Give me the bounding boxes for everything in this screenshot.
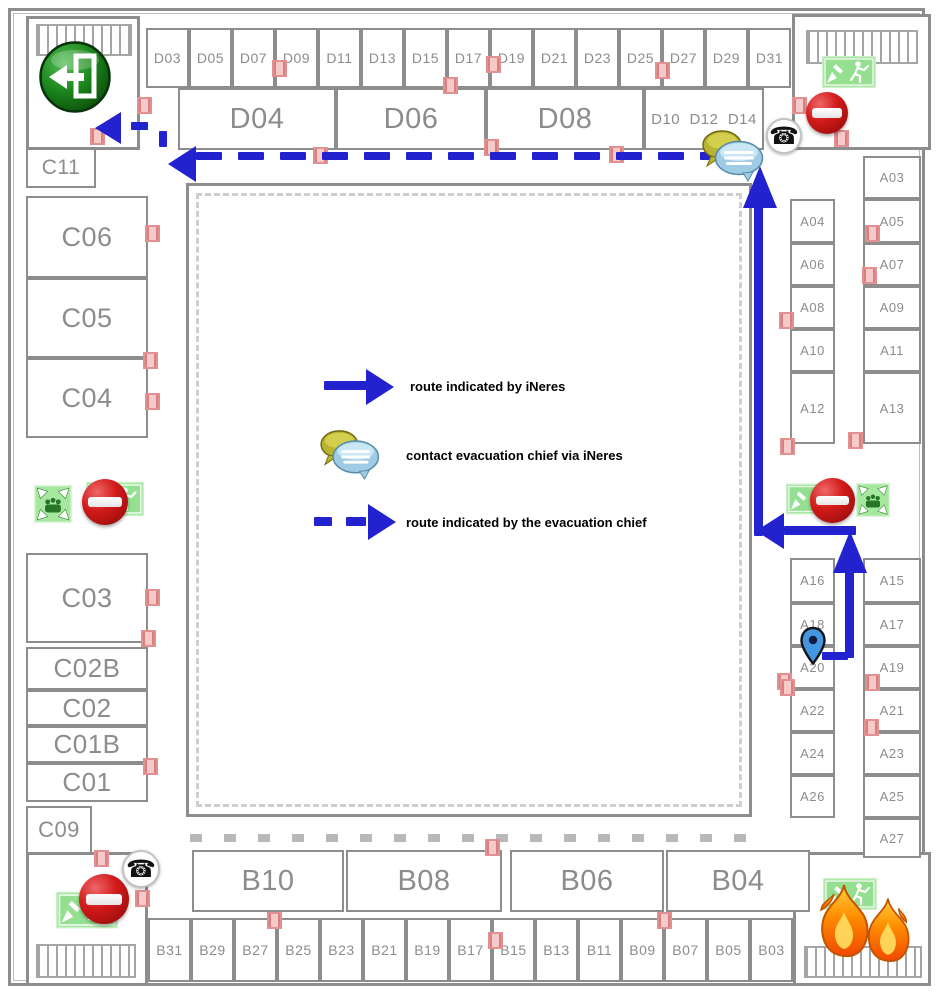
room-a27: A27 [863, 818, 921, 858]
room-d13: D13 [361, 28, 404, 88]
route-dashed-segment [448, 152, 474, 160]
room-b19: B19 [406, 918, 449, 982]
route-solid-up-arrowhead-2 [833, 531, 867, 573]
route-dashed-segment [238, 152, 264, 160]
phone-icon-bottom-left: ☎ [122, 850, 160, 888]
room-a03: A03 [863, 156, 921, 199]
route-solid-up-shaft [845, 572, 854, 658]
door-icon [143, 758, 158, 775]
room-a23: A23 [863, 732, 921, 775]
room-b04: B04 [666, 850, 810, 912]
phone-icon-top-right: ☎ [766, 118, 802, 154]
room-b05: B05 [707, 918, 750, 982]
room-b13: B13 [535, 918, 578, 982]
chat-bubbles-icon-legend [320, 428, 380, 485]
room-a06: A06 [790, 243, 835, 286]
door-icon [143, 352, 158, 369]
assembly-point-icon-right [856, 483, 890, 522]
no-entry-icon-right [810, 478, 855, 523]
route-dashed-vertical-dash [159, 131, 167, 147]
legend-solid-arrowhead [366, 369, 394, 405]
room-d11: D11 [318, 28, 361, 88]
room-c01: C01 [26, 763, 148, 802]
room-b29: B29 [191, 918, 234, 982]
door-icon [485, 839, 500, 856]
door-icon [145, 393, 160, 410]
room-a15: A15 [863, 558, 921, 603]
room-a13: A13 [863, 372, 921, 444]
route-dashed-segment [574, 152, 600, 160]
room-a04: A04 [790, 199, 835, 243]
courtyard [186, 183, 752, 817]
corridor-wall-ticks-bottom [190, 834, 758, 842]
door-icon [443, 77, 458, 94]
room-a09: A09 [863, 286, 921, 329]
room-d31: D31 [748, 28, 791, 88]
door-icon [135, 890, 150, 907]
door-icon [486, 56, 501, 73]
room-b11: B11 [578, 918, 621, 982]
no-entry-icon-bottom-left [79, 874, 129, 924]
legend-label-contact: contact evacuation chief via iNeres [406, 448, 623, 463]
room-c01b: C01B [26, 726, 148, 763]
door-icon [848, 432, 863, 449]
route-dashed-segment [490, 152, 516, 160]
emergency-exit-sign-icon [822, 56, 876, 93]
room-d05: D05 [189, 28, 232, 88]
door-icon [272, 60, 287, 77]
legend-label-dashed-route: route indicated by the evacuation chief [406, 515, 647, 530]
door-icon [862, 267, 877, 284]
door-icon [779, 312, 794, 329]
legend-label-solid-route: route indicated by iNeres [410, 379, 565, 394]
room-d23: D23 [576, 28, 619, 88]
room-a11: A11 [863, 329, 921, 372]
door-icon [657, 912, 672, 929]
room-c02: C02 [26, 690, 148, 726]
assembly-point-icon-left [33, 485, 73, 528]
route-dashed-segment [616, 152, 642, 160]
room-c06: C06 [26, 196, 148, 278]
door-icon [792, 97, 807, 114]
route-dashed-segment [532, 152, 558, 160]
room-b08: B08 [346, 850, 502, 912]
route-dashed-segment [658, 152, 684, 160]
exit-icon [38, 40, 112, 119]
door-icon [865, 225, 880, 242]
room-b31: B31 [148, 918, 191, 982]
room-d15: D15 [404, 28, 447, 88]
room-a10: A10 [790, 329, 835, 372]
room-b17: B17 [449, 918, 492, 982]
route-dashed-segment [406, 152, 432, 160]
route-dashed-segment [322, 152, 348, 160]
legend-dashed-arrowhead [368, 504, 396, 540]
location-pin-icon [799, 626, 827, 671]
room-c09: C09 [26, 806, 92, 854]
room-d04: D04 [178, 88, 336, 150]
stairs-hatch-bottom-left [36, 944, 136, 978]
door-icon [834, 130, 849, 147]
door-icon [137, 97, 152, 114]
door-icon [865, 674, 880, 691]
room-b15: B15 [492, 918, 535, 982]
route-dashed-left-arrowhead [168, 146, 196, 182]
door-icon [94, 850, 109, 867]
door-icon [267, 912, 282, 929]
room-b21: B21 [363, 918, 406, 982]
room-d27: D27 [662, 28, 705, 88]
room-d09: D09 [275, 28, 318, 88]
room-a25: A25 [863, 775, 921, 818]
room-c03: C03 [26, 553, 148, 643]
legend-dashed-shaft [346, 517, 366, 526]
room-a08: A08 [790, 286, 835, 329]
room-a24: A24 [790, 732, 835, 775]
door-icon [141, 630, 156, 647]
room-a16: A16 [790, 558, 835, 603]
route-dashed-segment [280, 152, 306, 160]
route-dashed-small-dash [131, 122, 148, 130]
evacuation-floorplan: ☎ [0, 0, 939, 1000]
route-solid-corridor-line [754, 206, 763, 536]
room-c04: C04 [26, 358, 148, 438]
room-a22: A22 [790, 689, 835, 732]
phone-glyph: ☎ [126, 855, 156, 884]
room-d21: D21 [533, 28, 576, 88]
room-b23: B23 [320, 918, 363, 982]
room-c02b: C02B [26, 647, 148, 690]
room-b25: B25 [277, 918, 320, 982]
room-b03: B03 [750, 918, 793, 982]
room-c11: C11 [26, 148, 96, 188]
room-a17: A17 [863, 603, 921, 646]
door-icon [864, 719, 879, 736]
room-b06: B06 [510, 850, 664, 912]
chat-bubbles-icon-top [702, 128, 764, 187]
legend-dashed-segment [314, 517, 332, 526]
route-dashed-segment [196, 152, 222, 160]
room-d07: D07 [232, 28, 275, 88]
door-icon [655, 62, 670, 79]
room-d08: D08 [486, 88, 644, 150]
route-dashed-segment [364, 152, 390, 160]
room-a26: A26 [790, 775, 835, 818]
route-solid-left-arrowhead [756, 513, 784, 549]
door-icon [145, 225, 160, 242]
no-entry-icon-left [82, 479, 128, 525]
room-d29: D29 [705, 28, 748, 88]
phone-glyph: ☎ [769, 122, 799, 151]
room-d03: D03 [146, 28, 189, 88]
door-icon [488, 932, 503, 949]
fire-icon-2 [858, 896, 918, 973]
door-icon [780, 679, 795, 696]
door-icon [780, 438, 795, 455]
legend-solid-arrow-shaft [324, 381, 368, 390]
room-d25: D25 [619, 28, 662, 88]
room-d06: D06 [336, 88, 486, 150]
room-a12: A12 [790, 372, 835, 444]
no-entry-icon-top-right [806, 92, 848, 134]
room-b10: B10 [192, 850, 344, 912]
room-c05: C05 [26, 278, 148, 358]
door-icon [145, 589, 160, 606]
